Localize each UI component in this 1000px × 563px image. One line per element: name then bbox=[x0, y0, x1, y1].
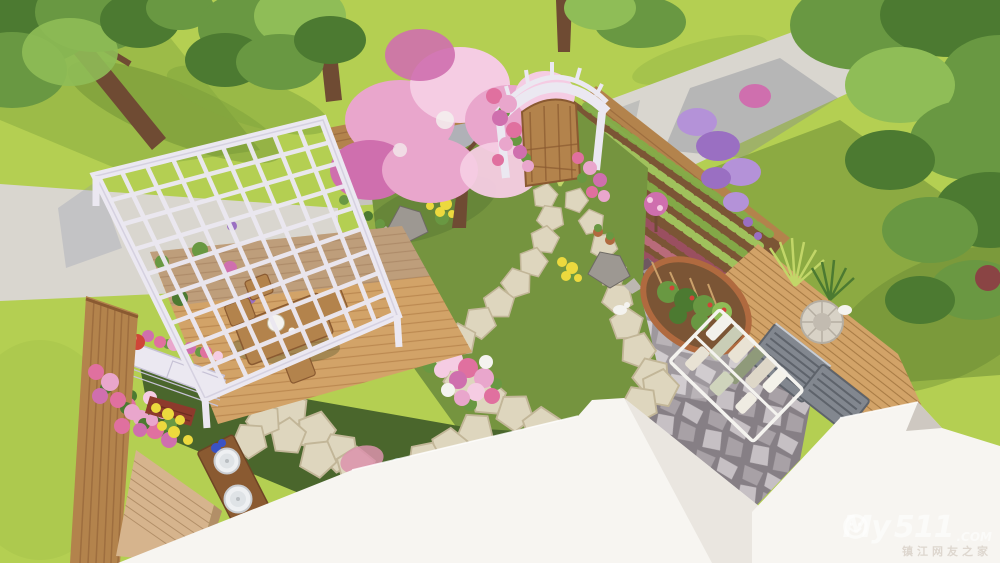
wash-basin bbox=[225, 486, 252, 513]
maroon-shrub bbox=[975, 265, 1000, 291]
watermark: My 511 .COM 镇江网友之家 bbox=[842, 513, 992, 557]
wash-basin bbox=[215, 449, 240, 474]
garden-render: My 511 .COM 镇江网友之家 bbox=[0, 0, 1000, 563]
arbor-gate bbox=[522, 100, 580, 187]
watermark-suffix: 511 bbox=[894, 513, 954, 543]
garden-scene bbox=[0, 0, 1000, 563]
watermark-brand: My 511 .COM bbox=[842, 513, 992, 543]
watermark-tld: .COM bbox=[956, 531, 992, 543]
bottle bbox=[218, 439, 226, 447]
watermark-tagline: 镇江网友之家 bbox=[842, 546, 992, 557]
